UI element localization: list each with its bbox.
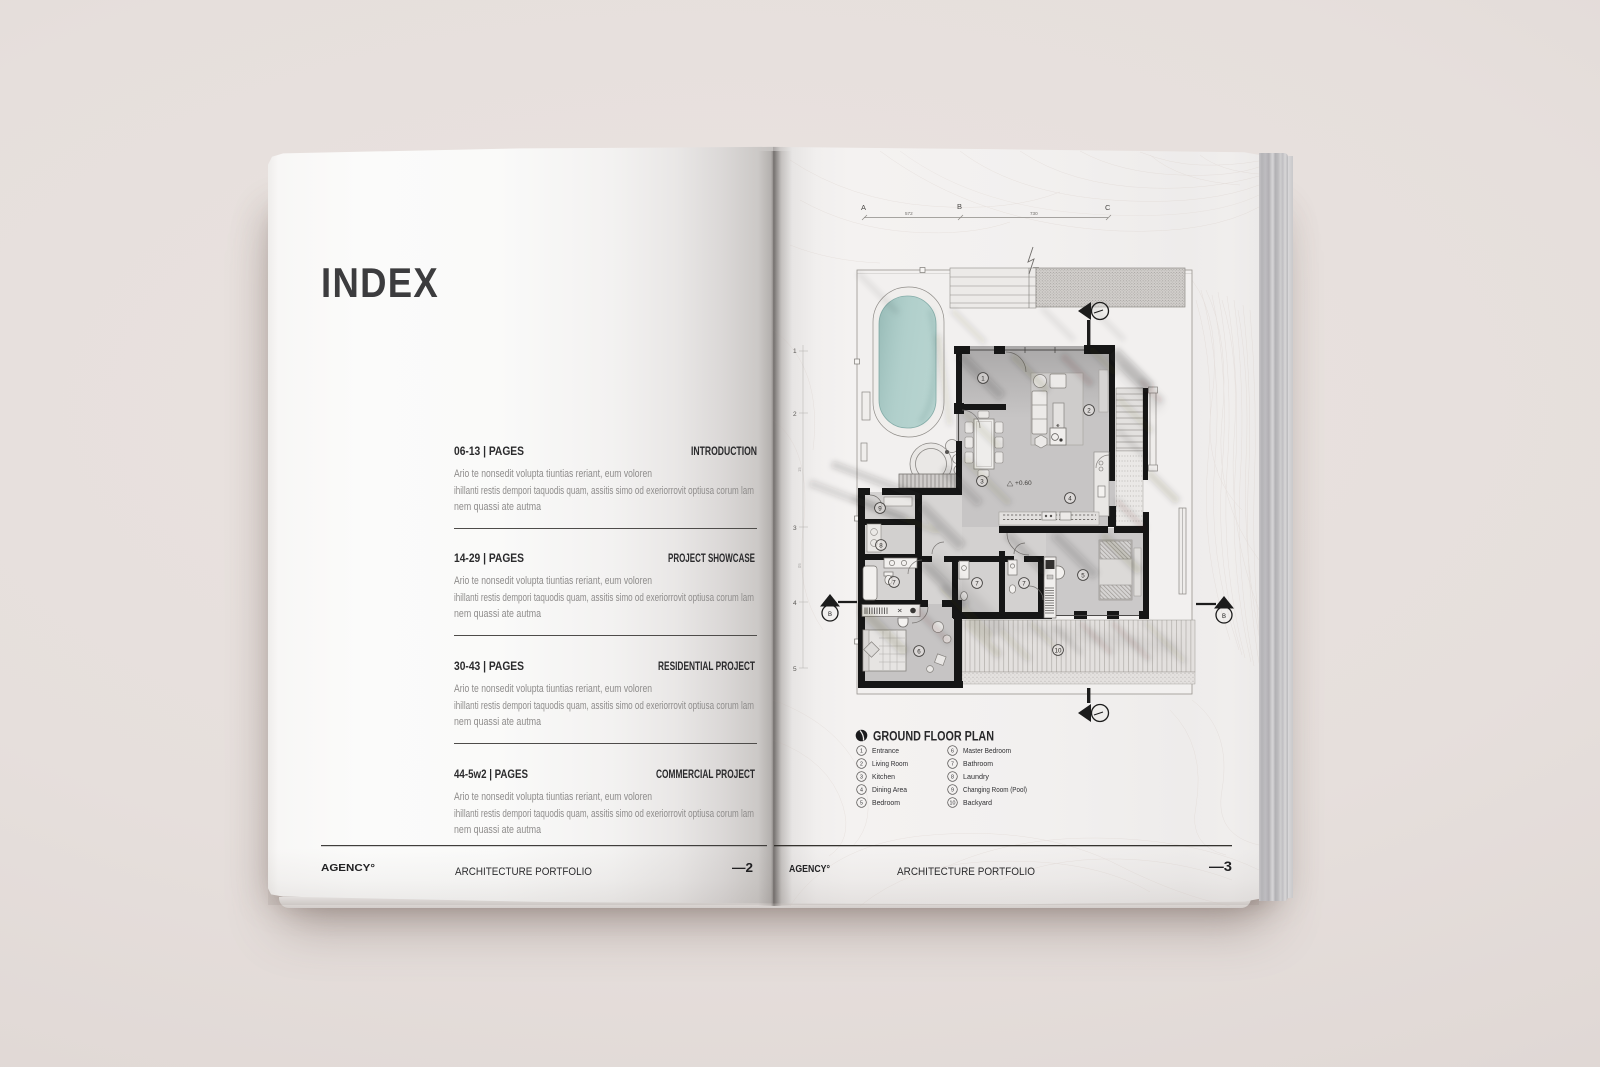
svg-text:ihillanti restis dempori taquo: ihillanti restis dempori taquodis quam, … bbox=[454, 592, 754, 604]
svg-text:5: 5 bbox=[793, 666, 797, 673]
svg-text:5: 5 bbox=[1081, 573, 1085, 580]
svg-text:Ario te nonsedit volupta tiunt: Ario te nonsedit volupta tiuntias rerian… bbox=[454, 791, 652, 803]
svg-text:ihillanti restis dempori taquo: ihillanti restis dempori taquodis quam, … bbox=[454, 700, 754, 712]
svg-text:3: 3 bbox=[860, 775, 863, 781]
svg-text:—2: —2 bbox=[732, 860, 753, 875]
svg-text:AGENCY°: AGENCY° bbox=[321, 863, 375, 874]
svg-text:7: 7 bbox=[892, 580, 896, 587]
svg-text:Changing Room (Pool): Changing Room (Pool) bbox=[963, 785, 1027, 794]
svg-text:2: 2 bbox=[860, 762, 863, 768]
svg-text:Ario te nonsedit volupta tiunt: Ario te nonsedit volupta tiuntias rerian… bbox=[454, 683, 652, 695]
svg-text:C: C bbox=[1105, 203, 1111, 212]
svg-text:B: B bbox=[957, 202, 962, 211]
svg-text:nem quassi ate autma: nem quassi ate autma bbox=[454, 824, 542, 836]
svg-text:Dining Area: Dining Area bbox=[872, 785, 908, 794]
svg-text:4: 4 bbox=[793, 600, 797, 607]
svg-text:ARCHITECTURE PORTFOLIO: ARCHITECTURE PORTFOLIO bbox=[455, 866, 592, 878]
svg-text:Bedroom: Bedroom bbox=[872, 798, 900, 807]
svg-text:Ario te nonsedit volupta tiunt: Ario te nonsedit volupta tiuntias rerian… bbox=[454, 468, 652, 480]
svg-text:6: 6 bbox=[951, 749, 954, 755]
svg-text:730: 730 bbox=[1030, 211, 1038, 216]
svg-text:9: 9 bbox=[951, 788, 954, 794]
svg-text:B: B bbox=[1222, 614, 1226, 620]
svg-text:4: 4 bbox=[1068, 496, 1072, 503]
svg-text:Backyard: Backyard bbox=[963, 798, 992, 807]
svg-text:Entrance: Entrance bbox=[872, 746, 899, 755]
svg-text:3: 3 bbox=[793, 525, 797, 532]
svg-text:Living Room: Living Room bbox=[872, 759, 908, 768]
svg-text:2: 2 bbox=[793, 411, 797, 418]
svg-text:572: 572 bbox=[905, 211, 913, 216]
svg-text:7: 7 bbox=[951, 762, 954, 768]
svg-text:Ario te nonsedit volupta tiunt: Ario te nonsedit volupta tiuntias rerian… bbox=[454, 575, 652, 587]
svg-text:Master Bedroom: Master Bedroom bbox=[963, 746, 1011, 755]
svg-text:3: 3 bbox=[980, 479, 984, 486]
svg-text:1: 1 bbox=[860, 749, 863, 755]
svg-text:INTRODUCTION: INTRODUCTION bbox=[691, 444, 757, 458]
svg-text:7: 7 bbox=[1022, 581, 1026, 588]
svg-text:ihillanti restis dempori taquo: ihillanti restis dempori taquodis quam, … bbox=[454, 485, 754, 497]
svg-text:10: 10 bbox=[950, 801, 956, 807]
svg-text:6: 6 bbox=[917, 649, 921, 656]
svg-text:RESIDENTIAL PROJECT: RESIDENTIAL PROJECT bbox=[658, 659, 755, 673]
svg-text:06-13 | PAGES: 06-13 | PAGES bbox=[454, 444, 524, 458]
svg-text:AGENCY°: AGENCY° bbox=[789, 864, 830, 875]
svg-text:8: 8 bbox=[879, 543, 883, 550]
svg-text:30-43 | PAGES: 30-43 | PAGES bbox=[454, 659, 524, 673]
svg-text:nem quassi ate autma: nem quassi ate autma bbox=[454, 608, 542, 620]
svg-text:nem quassi ate autma: nem quassi ate autma bbox=[454, 501, 542, 513]
svg-text:ihillanti restis dempori taquo: ihillanti restis dempori taquodis quam, … bbox=[454, 808, 754, 820]
svg-text:INDEX: INDEX bbox=[321, 259, 439, 306]
svg-text:44-5w2 | PAGES: 44-5w2 | PAGES bbox=[454, 767, 528, 781]
svg-text:ARCHITECTURE PORTFOLIO: ARCHITECTURE PORTFOLIO bbox=[897, 866, 1035, 878]
svg-text:B: B bbox=[828, 612, 832, 618]
svg-text:05: 05 bbox=[797, 563, 802, 568]
svg-text:Kitchen: Kitchen bbox=[872, 772, 895, 781]
svg-text:9: 9 bbox=[878, 506, 882, 513]
svg-text:10: 10 bbox=[1055, 648, 1062, 655]
svg-text:1: 1 bbox=[793, 348, 797, 355]
svg-text:nem quassi ate autma: nem quassi ate autma bbox=[454, 716, 542, 728]
svg-text:Bathroom: Bathroom bbox=[963, 759, 993, 768]
svg-text:+0.60: +0.60 bbox=[1015, 480, 1032, 487]
svg-text:15: 15 bbox=[797, 467, 802, 472]
svg-text:Laundry: Laundry bbox=[963, 772, 989, 781]
svg-text:5: 5 bbox=[860, 801, 863, 807]
svg-text:7: 7 bbox=[975, 581, 979, 588]
svg-text:4: 4 bbox=[860, 788, 863, 794]
svg-text:COMMERCIAL PROJECT: COMMERCIAL PROJECT bbox=[656, 767, 755, 781]
svg-text:2: 2 bbox=[1087, 408, 1091, 415]
svg-text:A: A bbox=[861, 203, 866, 212]
svg-text:—3: —3 bbox=[1209, 859, 1233, 874]
svg-text:8: 8 bbox=[951, 775, 954, 781]
svg-text:14-29 | PAGES: 14-29 | PAGES bbox=[454, 551, 524, 565]
svg-text:1: 1 bbox=[981, 376, 985, 383]
svg-text:PROJECT SHOWCASE: PROJECT SHOWCASE bbox=[668, 551, 755, 565]
svg-text:GROUND FLOOR PLAN: GROUND FLOOR PLAN bbox=[873, 729, 994, 744]
